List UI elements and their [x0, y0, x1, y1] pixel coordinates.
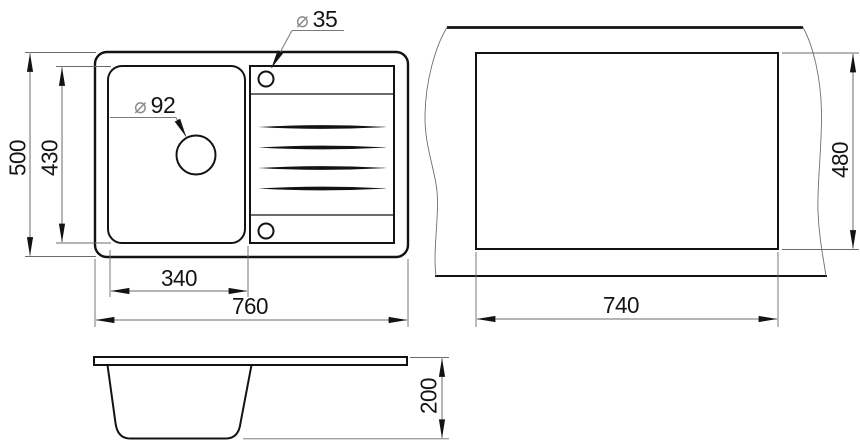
dim-cutout-width: 740 [476, 252, 778, 327]
drain-hole-label: ⌀92 [134, 92, 175, 118]
dim-label-cutout-width: 740 [603, 292, 639, 318]
bowl-profile [108, 365, 252, 439]
dim-label-bowl-height: 430 [37, 140, 63, 176]
diameter-symbol: ⌀ [296, 9, 309, 32]
drawing-canvas: ⌀92 ⌀35 500 430 340 [0, 0, 860, 443]
dim-label-bowl-width: 340 [161, 265, 197, 291]
drain-hole-callout: ⌀92 [110, 92, 186, 137]
cutout-rectangle [476, 53, 778, 249]
tap-hole-label: ⌀35 [296, 6, 337, 32]
dim-label-bowl-depth: 200 [416, 378, 442, 414]
dim-bowl-depth: 200 [243, 358, 449, 439]
rim-slab [94, 357, 407, 365]
tap-callout-leader [272, 31, 293, 69]
tap-hole-callout: ⌀35 [272, 6, 345, 68]
drain-hole-value: 92 [151, 92, 176, 118]
drainboard-groove-2 [258, 146, 387, 150]
drain-callout-leader [176, 118, 186, 137]
dim-label-outer-width: 760 [232, 293, 268, 319]
break-line-left [425, 28, 447, 277]
plan-view: ⌀92 ⌀35 500 430 340 [5, 6, 408, 327]
cutout-view: 480 740 [425, 28, 859, 328]
tap-hole-bottom [259, 224, 274, 239]
dim-label-outer-height: 500 [5, 140, 31, 176]
drainboard-groove-3 [258, 166, 387, 170]
drainboard-groove-1 [258, 125, 387, 129]
drainboard-groove-4 [258, 187, 387, 191]
dim-outer-width: 760 [95, 259, 408, 327]
dim-bowl-height: 430 [37, 67, 111, 244]
break-line-right [803, 28, 826, 277]
dim-label-cutout-height: 480 [827, 142, 853, 178]
sink-outer-rim [95, 52, 408, 257]
drain-hole [177, 136, 216, 175]
tap-hole-value: 35 [313, 6, 338, 32]
profile-view: 200 [94, 357, 449, 439]
tap-hole-top [259, 72, 274, 87]
drainboard-panel [250, 66, 394, 243]
diameter-symbol: ⌀ [134, 95, 147, 118]
sink-technical-drawing: ⌀92 ⌀35 500 430 340 [0, 0, 860, 443]
dim-bowl-width: 340 [110, 246, 248, 297]
